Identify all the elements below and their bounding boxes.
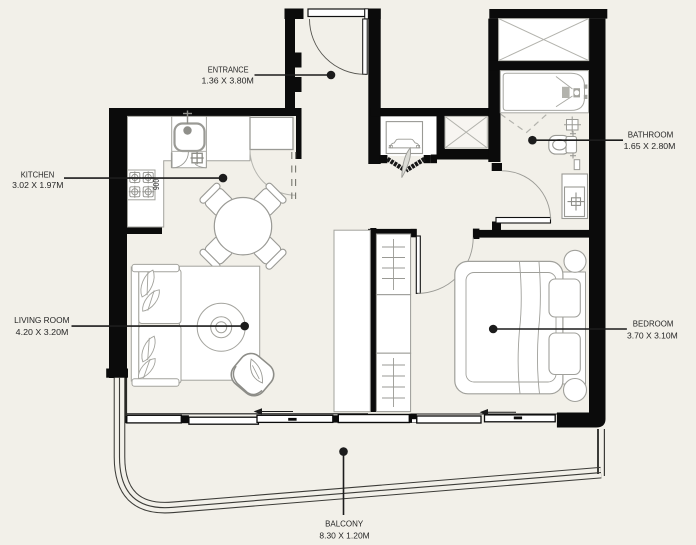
svg-text:8.30 X 1.20M: 8.30 X 1.20M [319, 532, 369, 541]
svg-text:ENTRANCE: ENTRANCE [208, 65, 249, 74]
svg-text:3.70 X 3.10M: 3.70 X 3.10M [627, 332, 678, 341]
svg-text:900: 900 [152, 179, 161, 190]
svg-text:3.02 X 1.97M: 3.02 X 1.97M [12, 181, 63, 190]
svg-text:4.20 X 3.20M: 4.20 X 3.20M [16, 328, 69, 337]
svg-text:1.65 X 2.80M: 1.65 X 2.80M [624, 142, 676, 151]
svg-text:BALCONY: BALCONY [325, 520, 364, 529]
svg-text:BEDROOM: BEDROOM [633, 320, 674, 329]
svg-text:LIVING ROOM: LIVING ROOM [14, 316, 69, 325]
svg-text:1.36 X 3.80M: 1.36 X 3.80M [202, 77, 254, 86]
svg-text:BATHROOM: BATHROOM [628, 131, 674, 140]
svg-text:KITCHEN: KITCHEN [21, 171, 55, 180]
